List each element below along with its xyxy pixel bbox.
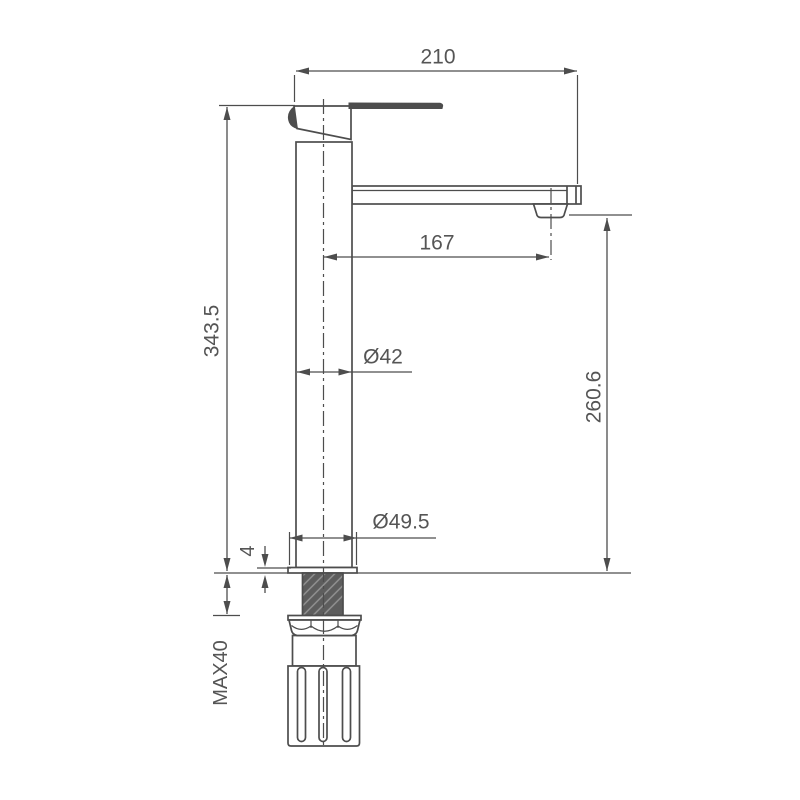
dimension-label-max-counter-thickness: MAX40 xyxy=(210,640,232,706)
dimension-label-base-diameter: Ø49.5 xyxy=(372,511,429,534)
dimension-label-flange-thickness: 4 xyxy=(237,545,259,556)
dimension-label-outlet-height: 260.6 xyxy=(583,371,606,424)
dimension-label-top-width: 210 xyxy=(420,46,455,69)
handle-cap xyxy=(288,106,351,140)
knurl-slot xyxy=(343,668,351,742)
faucet-dimension-drawing: 210 167 343.5 260.6 Ø42 Ø49.5 xyxy=(0,0,800,800)
dimension-flange-thickness: 4 xyxy=(237,545,291,593)
dimension-max-counter-thickness: MAX40 xyxy=(210,575,240,706)
knurl-slot xyxy=(298,668,306,742)
technical-drawing-canvas: 210 167 343.5 260.6 Ø42 Ø49.5 xyxy=(0,0,800,800)
spout-arm xyxy=(352,186,581,204)
dimension-label-body-diameter: Ø42 xyxy=(363,346,403,369)
dimension-spout-reach: 167 xyxy=(324,232,549,261)
dimension-label-overall-height: 343.5 xyxy=(201,305,224,358)
dimension-outlet-height: 260.6 xyxy=(569,215,632,571)
dimension-overall-height: 343.5 xyxy=(201,106,296,572)
foot-upper-section xyxy=(293,636,357,667)
dimension-label-spout-reach: 167 xyxy=(419,232,454,255)
handle-lever xyxy=(349,103,443,109)
mounting-nut xyxy=(288,616,361,636)
